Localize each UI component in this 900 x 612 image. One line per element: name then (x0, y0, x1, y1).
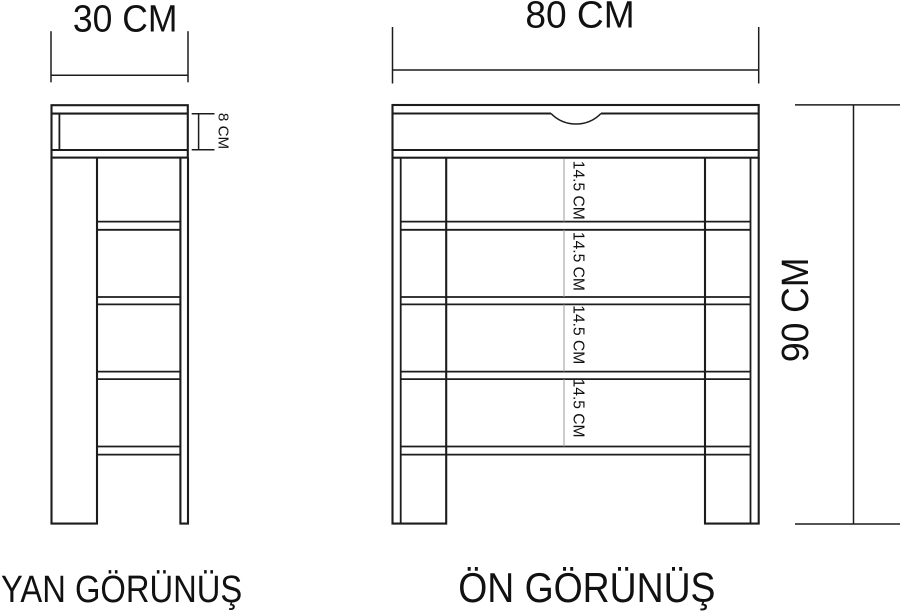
svg-text:YAN GÖRÜNÜŞ: YAN GÖRÜNÜŞ (1, 568, 242, 611)
svg-text:80 CM: 80 CM (525, 0, 634, 37)
svg-text:90 CM: 90 CM (774, 258, 817, 363)
svg-text:8 CM: 8 CM (214, 113, 231, 149)
svg-text:14.5 CM: 14.5 CM (570, 379, 587, 438)
svg-text:14.5 CM: 14.5 CM (570, 161, 587, 220)
svg-text:ÖN GÖRÜNÜŞ: ÖN GÖRÜNÜŞ (458, 565, 715, 611)
svg-text:14.5 CM: 14.5 CM (570, 232, 587, 291)
svg-text:30 CM: 30 CM (73, 0, 178, 40)
svg-text:14.5 CM: 14.5 CM (570, 305, 587, 364)
